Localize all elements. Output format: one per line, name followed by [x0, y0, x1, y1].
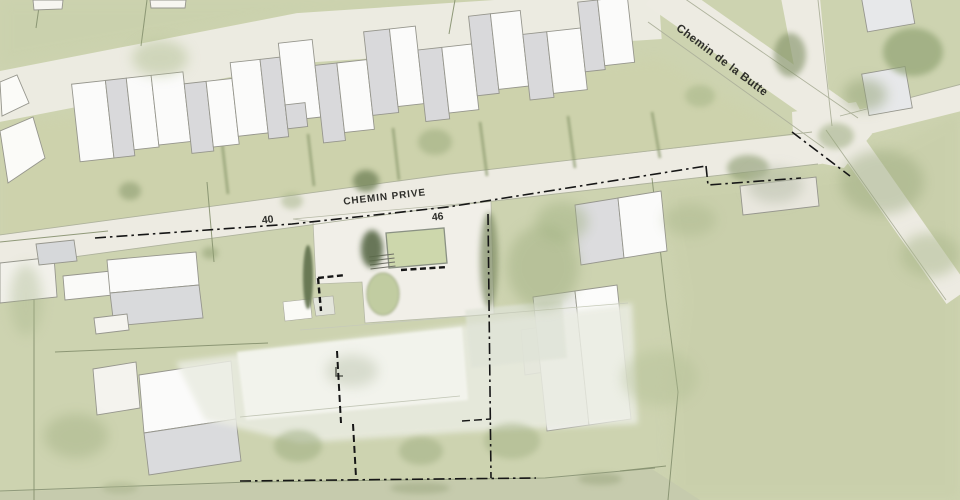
- tree: [883, 28, 943, 76]
- building: [63, 271, 113, 300]
- swimming-pool: [386, 228, 447, 268]
- tree: [274, 430, 322, 462]
- tree: [484, 423, 540, 459]
- tree: [664, 204, 716, 236]
- tree: [102, 482, 138, 494]
- tree: [44, 414, 108, 458]
- terraced-house: [285, 103, 308, 129]
- building: [33, 0, 63, 10]
- tree: [132, 40, 188, 76]
- tree: [818, 123, 854, 149]
- existing-roof-wash: [465, 300, 567, 368]
- tree: [399, 437, 443, 465]
- tree: [361, 230, 383, 268]
- tree: [418, 129, 452, 155]
- tree: [353, 170, 379, 192]
- tree: [202, 247, 218, 259]
- house-number-40-label: 40: [261, 213, 274, 226]
- site-plan-canvas: Chemin de la Butte CHEMIN PRIVE 40 46: [0, 0, 960, 500]
- tree-shadow: [326, 355, 378, 387]
- house-number-46-label: 46: [431, 210, 444, 223]
- tree: [774, 33, 806, 77]
- building: [618, 191, 667, 258]
- cypress-tree: [303, 245, 313, 309]
- site-plan-map: Chemin de la Butte CHEMIN PRIVE 40 46: [0, 0, 960, 500]
- building: [36, 240, 77, 265]
- tree: [578, 473, 622, 485]
- small-structure: [313, 296, 335, 316]
- tree: [840, 150, 924, 214]
- building: [150, 0, 186, 8]
- building-annex: [94, 314, 129, 334]
- tree: [281, 193, 303, 209]
- tree-shadow: [747, 167, 803, 203]
- round-garden-bed: [367, 273, 399, 315]
- tree: [119, 182, 141, 200]
- tree: [900, 233, 960, 277]
- tree: [536, 202, 588, 242]
- building-annex: [93, 362, 140, 415]
- tree: [685, 85, 715, 107]
- tree: [390, 482, 450, 494]
- tree: [622, 350, 698, 406]
- tree: [843, 79, 887, 111]
- tree: [10, 264, 42, 336]
